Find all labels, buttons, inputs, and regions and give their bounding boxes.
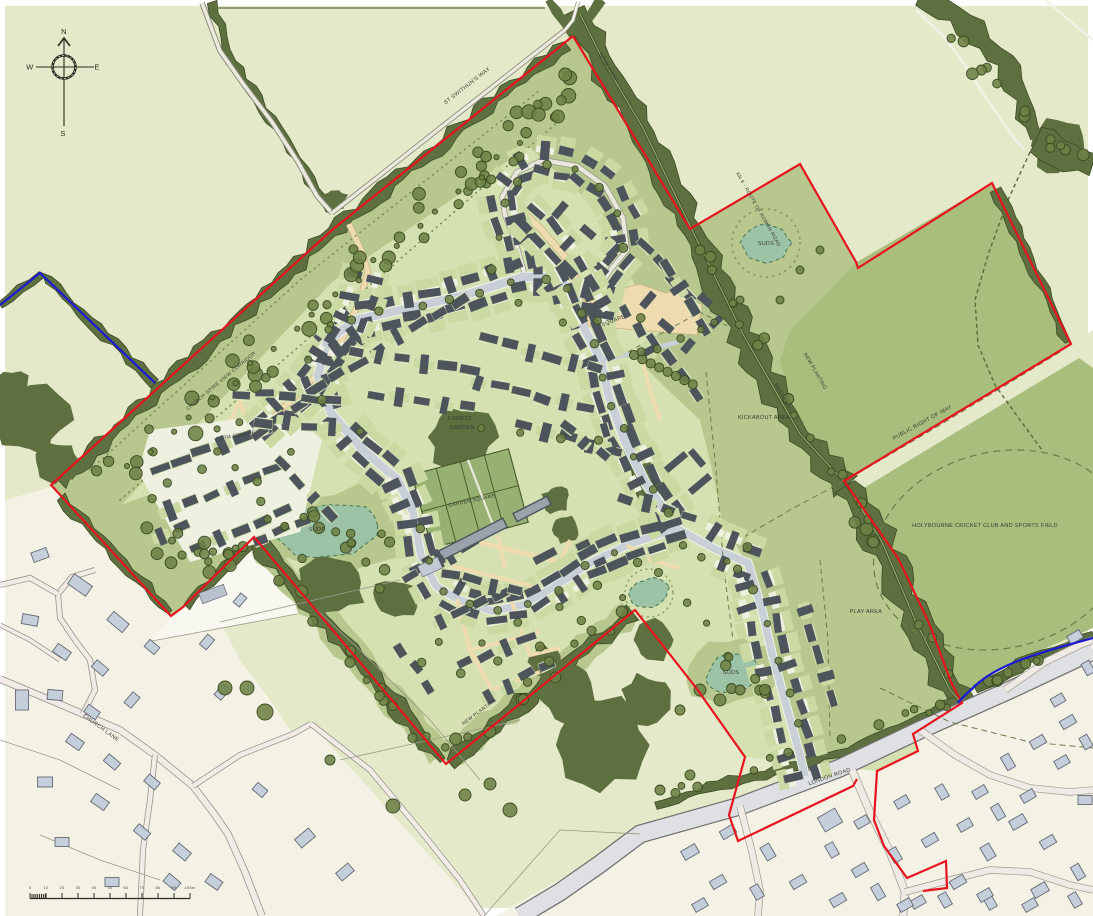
svg-text:50: 50 [107,885,113,890]
svg-text:40: 40 [91,885,97,890]
svg-text:N: N [61,27,67,36]
svg-text:60: 60 [123,885,129,890]
svg-text:10: 10 [43,885,49,890]
svg-text:70: 70 [139,885,145,890]
svg-text:PLAY AREA: PLAY AREA [850,609,882,615]
svg-text:SUDS: SUDS [758,241,775,247]
svg-text:30: 30 [75,885,81,890]
svg-text:80: 80 [155,885,161,890]
svg-text:SUDS: SUDS [309,527,326,533]
svg-text:KICKABOUT AREA: KICKABOUT AREA [738,415,790,421]
svg-text:FOREST: FOREST [448,416,472,422]
svg-text:SUDS: SUDS [723,670,740,676]
svg-text:90: 90 [171,885,177,890]
svg-text:100m: 100m [184,885,196,890]
svg-text:E: E [94,63,99,72]
svg-text:20: 20 [59,885,65,890]
svg-text:W: W [26,63,34,72]
svg-text:S: S [60,129,65,138]
svg-text:HOLYBOURNE CRICKET CLUB AND SP: HOLYBOURNE CRICKET CLUB AND SPORTS FIELD [912,523,1058,529]
svg-text:GARDEN: GARDEN [449,425,474,431]
